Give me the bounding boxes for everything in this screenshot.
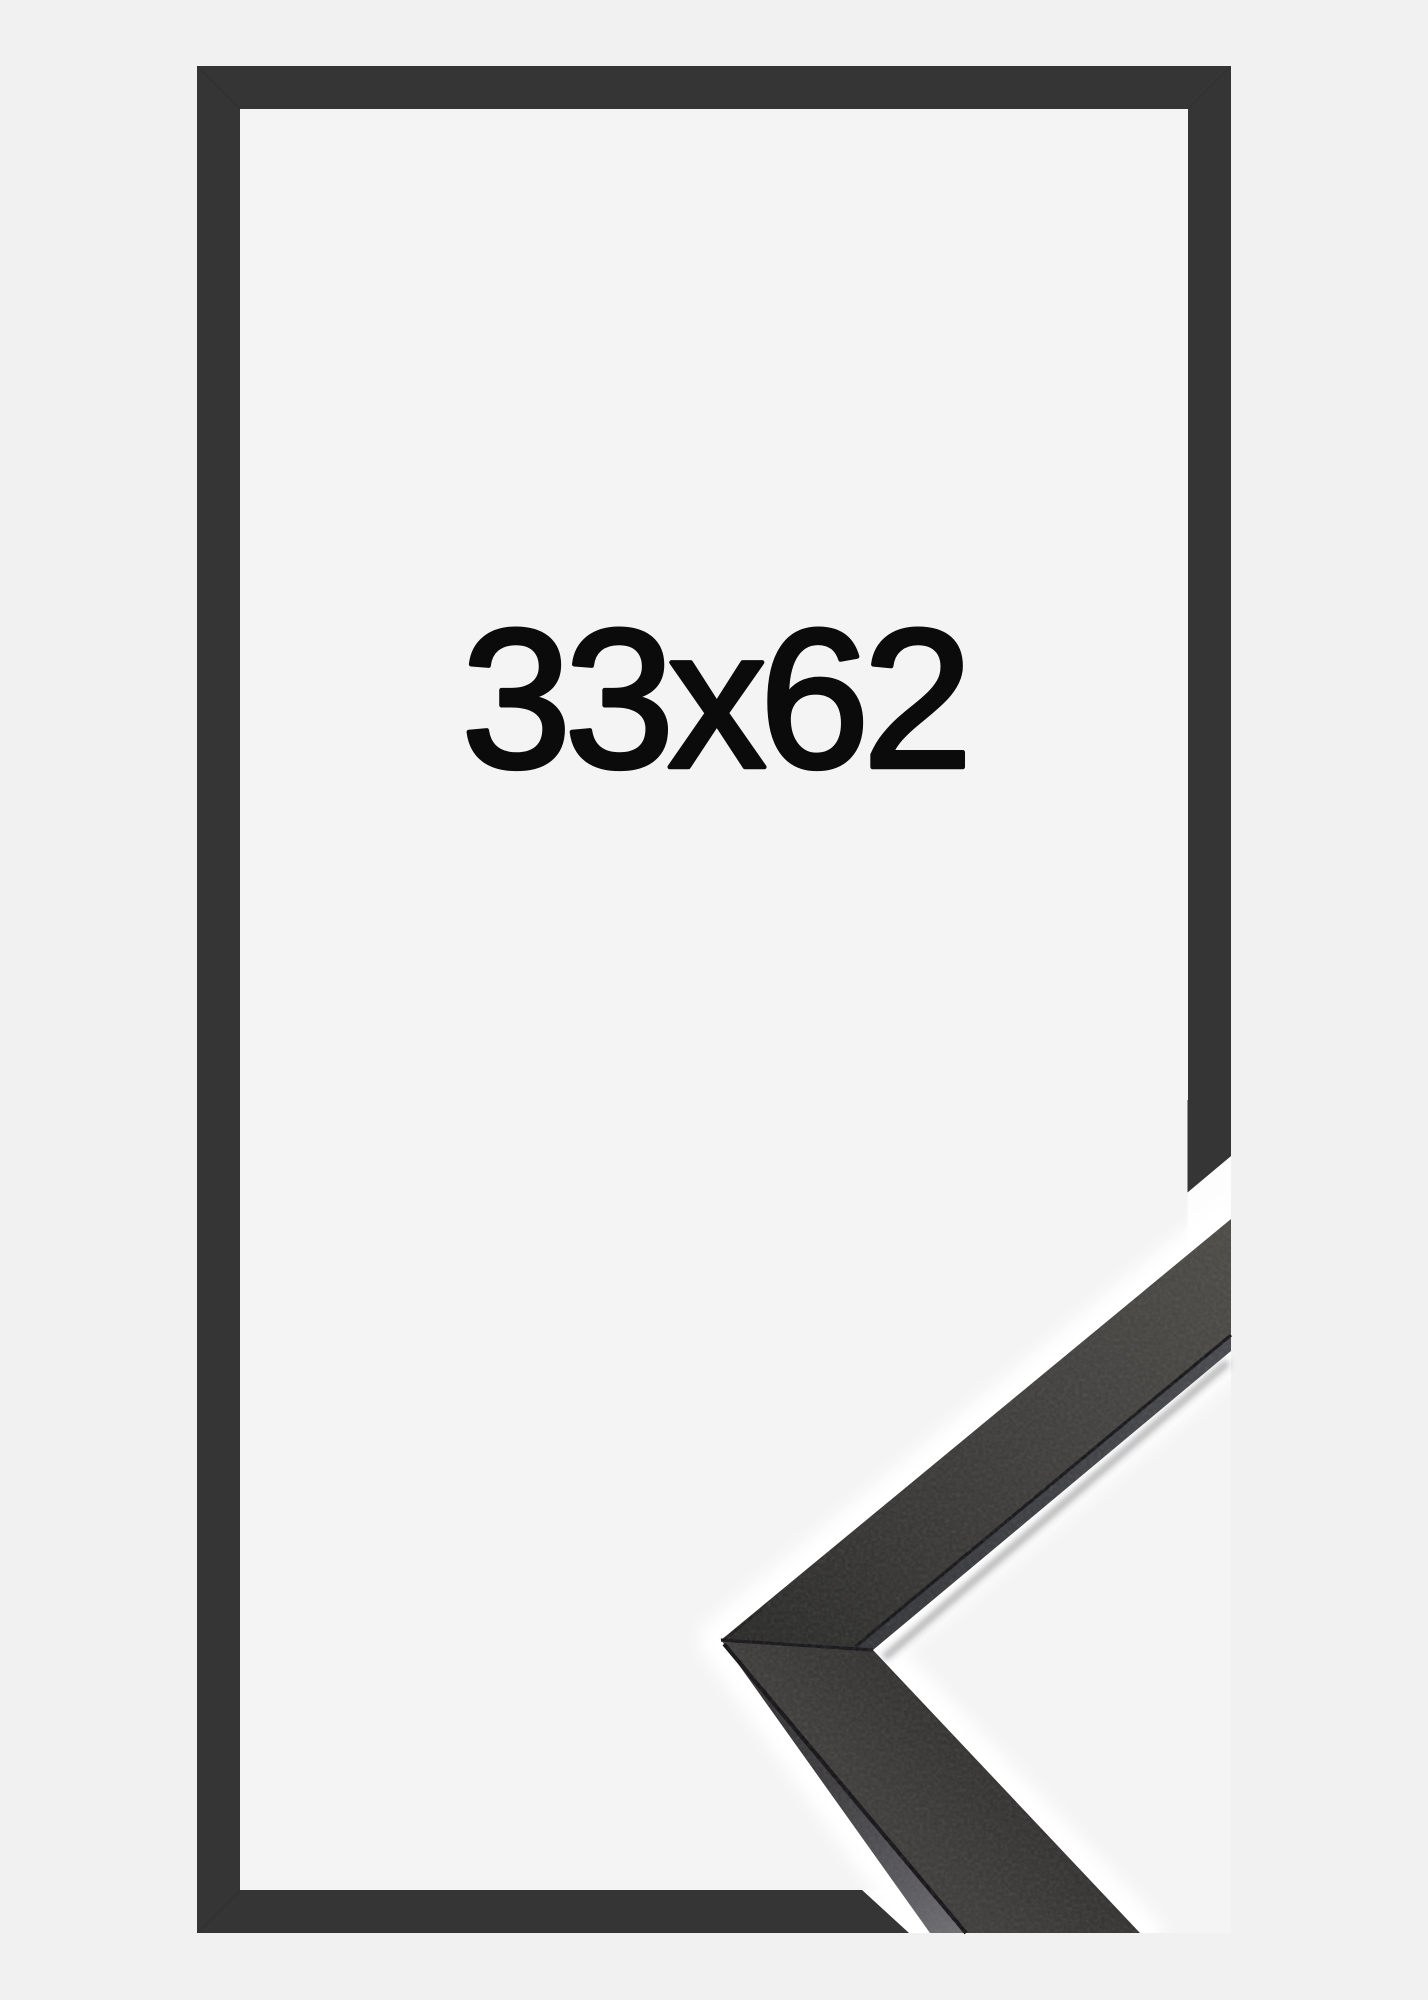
svg-text:33x62: 33x62 xyxy=(461,588,965,809)
